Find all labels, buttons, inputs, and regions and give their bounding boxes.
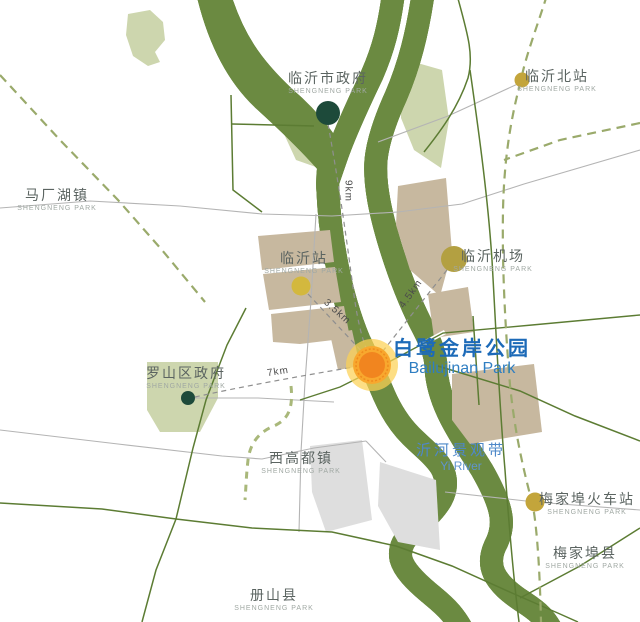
label-linyi-station: 临沂站 SHENGNENG PARK — [264, 251, 344, 276]
label-airport: 临沂机场 SHENGNENG PARK — [453, 249, 533, 274]
xigaodu-sub: SHENGNENG PARK — [261, 467, 341, 476]
airport-name: 临沂机场 — [453, 249, 533, 264]
meijiabu-station-name: 梅家埠火车站 — [539, 492, 635, 507]
city-gov-name: 临沂市政府 — [288, 71, 368, 86]
meijiabu-county-name: 梅家埠县 — [545, 546, 625, 561]
label-luoshan-gov: 罗山区政府 SHENGNENG PARK — [146, 366, 226, 391]
label-xigaodu: 西高都镇 SHENGNENG PARK — [261, 451, 341, 476]
label-north-station: 临沂北站 SHENGNENG PARK — [517, 69, 597, 94]
linyi-station-name: 临沂站 — [264, 251, 344, 266]
location-map: 临沂市政府 SHENGNENG PARK 临沂北站 SHENGNENG PARK… — [0, 0, 640, 622]
river-name-en: Yi River — [416, 459, 506, 473]
luoshan-gov-name: 罗山区政府 — [146, 366, 226, 381]
north-station-name: 临沂北站 — [517, 69, 597, 84]
xigaodu-name: 西高都镇 — [261, 451, 341, 466]
city-gov-sub: SHENGNENG PARK — [288, 87, 368, 96]
distance-to-city-gov: 9km — [343, 180, 354, 202]
label-ceshan: 册山县 SHENGNENG PARK — [234, 588, 314, 613]
park-title: 白鹭金岸公园 Bailujinan Park — [393, 339, 531, 378]
linyi-station-sub: SHENGNENG PARK — [264, 267, 344, 276]
label-machanghu: 马厂湖镇 SHENGNENG PARK — [17, 188, 97, 213]
ceshan-name: 册山县 — [234, 588, 314, 603]
linyi-station-dot — [292, 277, 311, 296]
luoshan-gov-sub: SHENGNENG PARK — [146, 382, 226, 391]
park-name-en: Bailujinan Park — [393, 360, 531, 378]
luoshan-gov-dot — [181, 391, 195, 405]
meijiabu-county-sub: SHENGNENG PARK — [545, 562, 625, 571]
label-city-gov: 临沂市政府 SHENGNENG PARK — [288, 71, 368, 96]
meijiabu-station-sub: SHENGNENG PARK — [539, 508, 635, 517]
park-name-zh: 白鹭金岸公园 — [393, 339, 531, 360]
ceshan-sub: SHENGNENG PARK — [234, 604, 314, 613]
north-station-sub: SHENGNENG PARK — [517, 85, 597, 94]
label-meijiabu-station: 梅家埠火车站 SHENGNENG PARK — [539, 492, 635, 517]
river-title: 沂河景观带 Yi River — [416, 443, 506, 473]
river-name-zh: 沂河景观带 — [416, 443, 506, 459]
machanghu-sub: SHENGNENG PARK — [17, 204, 97, 213]
label-meijiabu-county: 梅家埠县 SHENGNENG PARK — [545, 546, 625, 571]
airport-sub: SHENGNENG PARK — [453, 265, 533, 274]
park-marker — [346, 339, 398, 391]
machanghu-name: 马厂湖镇 — [17, 188, 97, 203]
city-gov-dot — [316, 101, 340, 125]
